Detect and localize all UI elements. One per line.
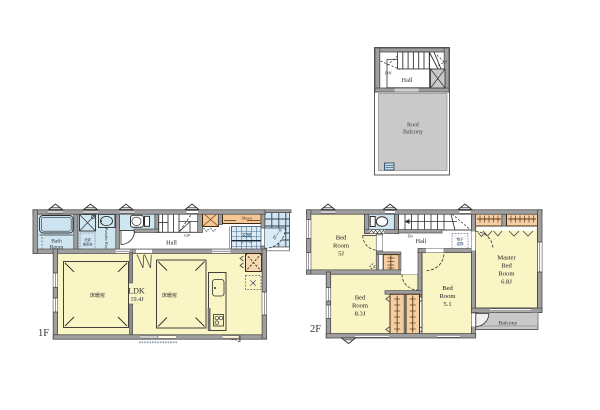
svg-text:機置場: 機置場 (83, 242, 93, 247)
svg-text:Hall: Hall (401, 77, 412, 84)
svg-text:19.4J: 19.4J (130, 296, 144, 303)
svg-text:Bed: Bed (336, 235, 347, 242)
svg-text:Bed: Bed (442, 285, 453, 292)
svg-text:Bed: Bed (355, 295, 366, 302)
svg-text:床暖房: 床暖房 (162, 292, 177, 299)
svg-text:Room: Room (352, 303, 369, 310)
svg-text:DN: DN (384, 71, 392, 76)
svg-text:床暖房: 床暖房 (90, 292, 105, 299)
svg-text:2F: 2F (310, 324, 321, 335)
svg-text:8.3J: 8.3J (355, 311, 366, 318)
svg-text:Room: Room (333, 243, 350, 250)
svg-text:洗濯: 洗濯 (84, 237, 91, 242)
svg-text:Shoes: Shoes (242, 216, 253, 221)
svg-text:Balcony: Balcony (403, 130, 423, 136)
svg-text:UP: UP (184, 233, 190, 238)
svg-text:Roof: Roof (407, 122, 419, 129)
svg-text:5J: 5J (338, 251, 344, 258)
svg-text:LDK: LDK (128, 287, 145, 296)
svg-text:金物: 金物 (457, 241, 464, 246)
svg-text:冷: 冷 (252, 280, 255, 285)
svg-text:Room: Room (439, 293, 456, 300)
svg-text:Balcony: Balcony (499, 321, 518, 327)
svg-text:5.1: 5.1 (443, 301, 451, 308)
svg-text:Master: Master (497, 255, 516, 262)
svg-text:玄関: 玄関 (242, 232, 252, 239)
svg-text:Room: Room (498, 271, 515, 278)
svg-text:Dn: Dn (407, 234, 413, 239)
svg-text:Hall: Hall (166, 240, 177, 247)
svg-text:Bed: Bed (501, 263, 512, 270)
svg-text:Hall: Hall (416, 238, 427, 245)
svg-text:1F: 1F (38, 328, 49, 339)
svg-text:物干: 物干 (457, 237, 464, 242)
svg-text:ホール: ホール (241, 239, 253, 244)
svg-text:6.8J: 6.8J (501, 279, 512, 286)
